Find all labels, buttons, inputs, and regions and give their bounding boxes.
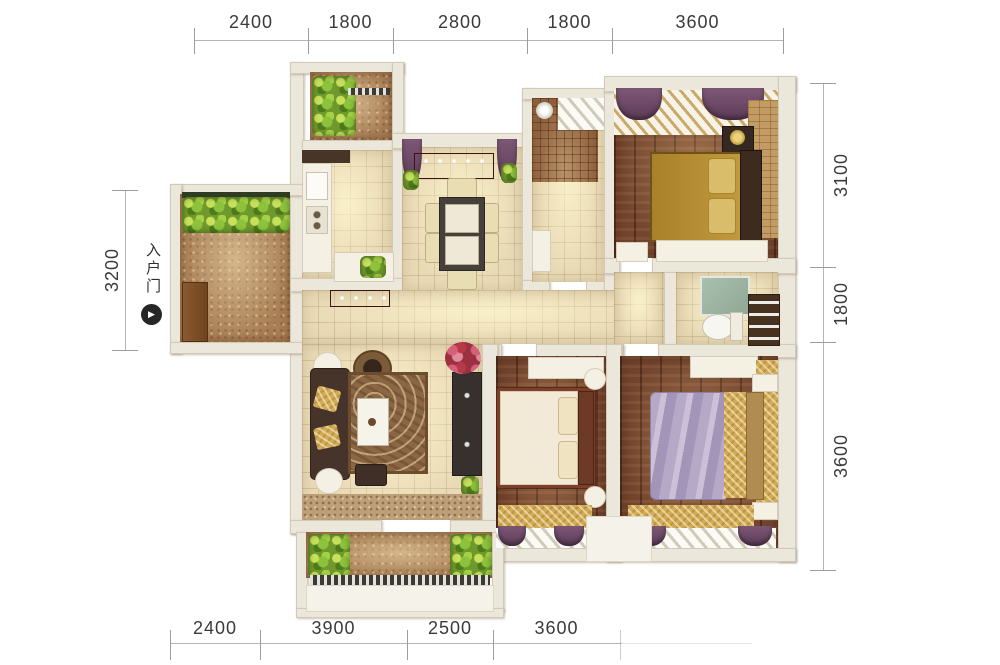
- window-pier-wall: [586, 516, 652, 562]
- side-table: [752, 374, 778, 392]
- flower-bouquet: [445, 342, 481, 374]
- console-table: [330, 290, 390, 307]
- headboard: [578, 391, 594, 485]
- tv-cabinet: [452, 372, 482, 476]
- headboard: [746, 392, 764, 500]
- wall: [778, 76, 796, 562]
- table-lamp: [730, 130, 745, 145]
- threshold-mat: [302, 494, 482, 520]
- dim-line-bottom: [170, 643, 622, 644]
- dim-tick: [810, 570, 836, 571]
- ceiling-light: [536, 102, 553, 119]
- balcony-railing: [310, 575, 490, 585]
- dim-top-4: 1800: [527, 12, 612, 33]
- dim-right-3: 3600: [831, 426, 851, 486]
- dim-tick: [194, 28, 195, 54]
- entry-door: [182, 282, 208, 342]
- plant: [461, 476, 479, 496]
- hallway-nook-floor: [614, 272, 664, 344]
- range-hood: [302, 150, 350, 163]
- dim-top-3: 2800: [393, 12, 527, 33]
- balcony-railing: [348, 88, 390, 95]
- plant: [501, 163, 517, 183]
- pillow: [558, 397, 578, 435]
- south-balcony-ledge: [306, 585, 494, 612]
- carpet-runner: [498, 505, 592, 528]
- dim-tick: [393, 28, 394, 54]
- side-table: [752, 502, 778, 520]
- dim-line-top: [194, 40, 783, 41]
- stove: [306, 206, 328, 234]
- dim-line-bottom-fade: [622, 643, 752, 644]
- dim-bottom-1: 2400: [170, 618, 260, 639]
- plant: [312, 76, 356, 136]
- dim-tick: [308, 28, 309, 54]
- plant: [360, 256, 386, 278]
- pillow: [708, 198, 736, 234]
- floor-plan-canvas: 2400 1800 2800 1800 3600 2400 3900 2500 …: [0, 0, 1000, 665]
- dim-top-2: 1800: [308, 12, 393, 33]
- dim-tick: [810, 83, 836, 84]
- dim-top-5: 3600: [612, 12, 783, 33]
- wall: [170, 342, 304, 354]
- wardrobe: [690, 356, 758, 378]
- bed3-quilt: [724, 392, 746, 498]
- dim-tick: [407, 630, 408, 660]
- dim-right-2: 1800: [831, 274, 851, 334]
- placemat: [445, 236, 479, 265]
- dim-line-right: [823, 83, 824, 570]
- dim-tick: [112, 190, 138, 191]
- dim-tick: [620, 630, 621, 660]
- dim-bottom-4: 3600: [493, 618, 620, 639]
- dim-tick: [527, 28, 528, 54]
- sideboard: [414, 153, 494, 179]
- wardrobe: [656, 240, 768, 262]
- pillow: [708, 158, 736, 194]
- dim-left-1: 3200: [102, 240, 122, 300]
- plant: [308, 534, 350, 578]
- dim-tick: [170, 630, 171, 660]
- dim-tick: [783, 28, 784, 54]
- dim-tick: [612, 28, 613, 54]
- plant: [403, 170, 419, 190]
- entrance-direction-icon: ▶: [141, 304, 162, 325]
- dim-top-1: 2400: [194, 12, 308, 33]
- ottoman: [355, 464, 387, 486]
- side-table: [584, 368, 606, 390]
- side-table: [315, 468, 343, 494]
- plant: [182, 197, 290, 233]
- table-decor: [368, 418, 376, 426]
- kitchen-sink: [306, 172, 328, 200]
- dim-tick: [112, 350, 138, 351]
- dim-bottom-3: 2500: [407, 618, 493, 639]
- dim-tick: [810, 267, 836, 268]
- towel-cabinet: [748, 294, 780, 346]
- bathroom-sink: [532, 230, 551, 272]
- dim-tick: [493, 630, 494, 660]
- entrance-label: 入户门: [142, 242, 163, 304]
- window-blinds: [558, 98, 604, 130]
- pillow: [558, 441, 578, 479]
- shower: [700, 276, 750, 316]
- placemat: [445, 204, 479, 233]
- bed3-duvet: [650, 392, 726, 500]
- dim-right-1: 3100: [831, 145, 851, 205]
- bench: [616, 242, 648, 262]
- toilet-tank: [730, 312, 743, 341]
- dim-bottom-2: 3900: [260, 618, 407, 639]
- headboard: [740, 150, 762, 242]
- dim-tick: [260, 630, 261, 660]
- plant: [450, 534, 492, 578]
- dim-line-left: [125, 190, 126, 350]
- dim-tick: [810, 342, 836, 343]
